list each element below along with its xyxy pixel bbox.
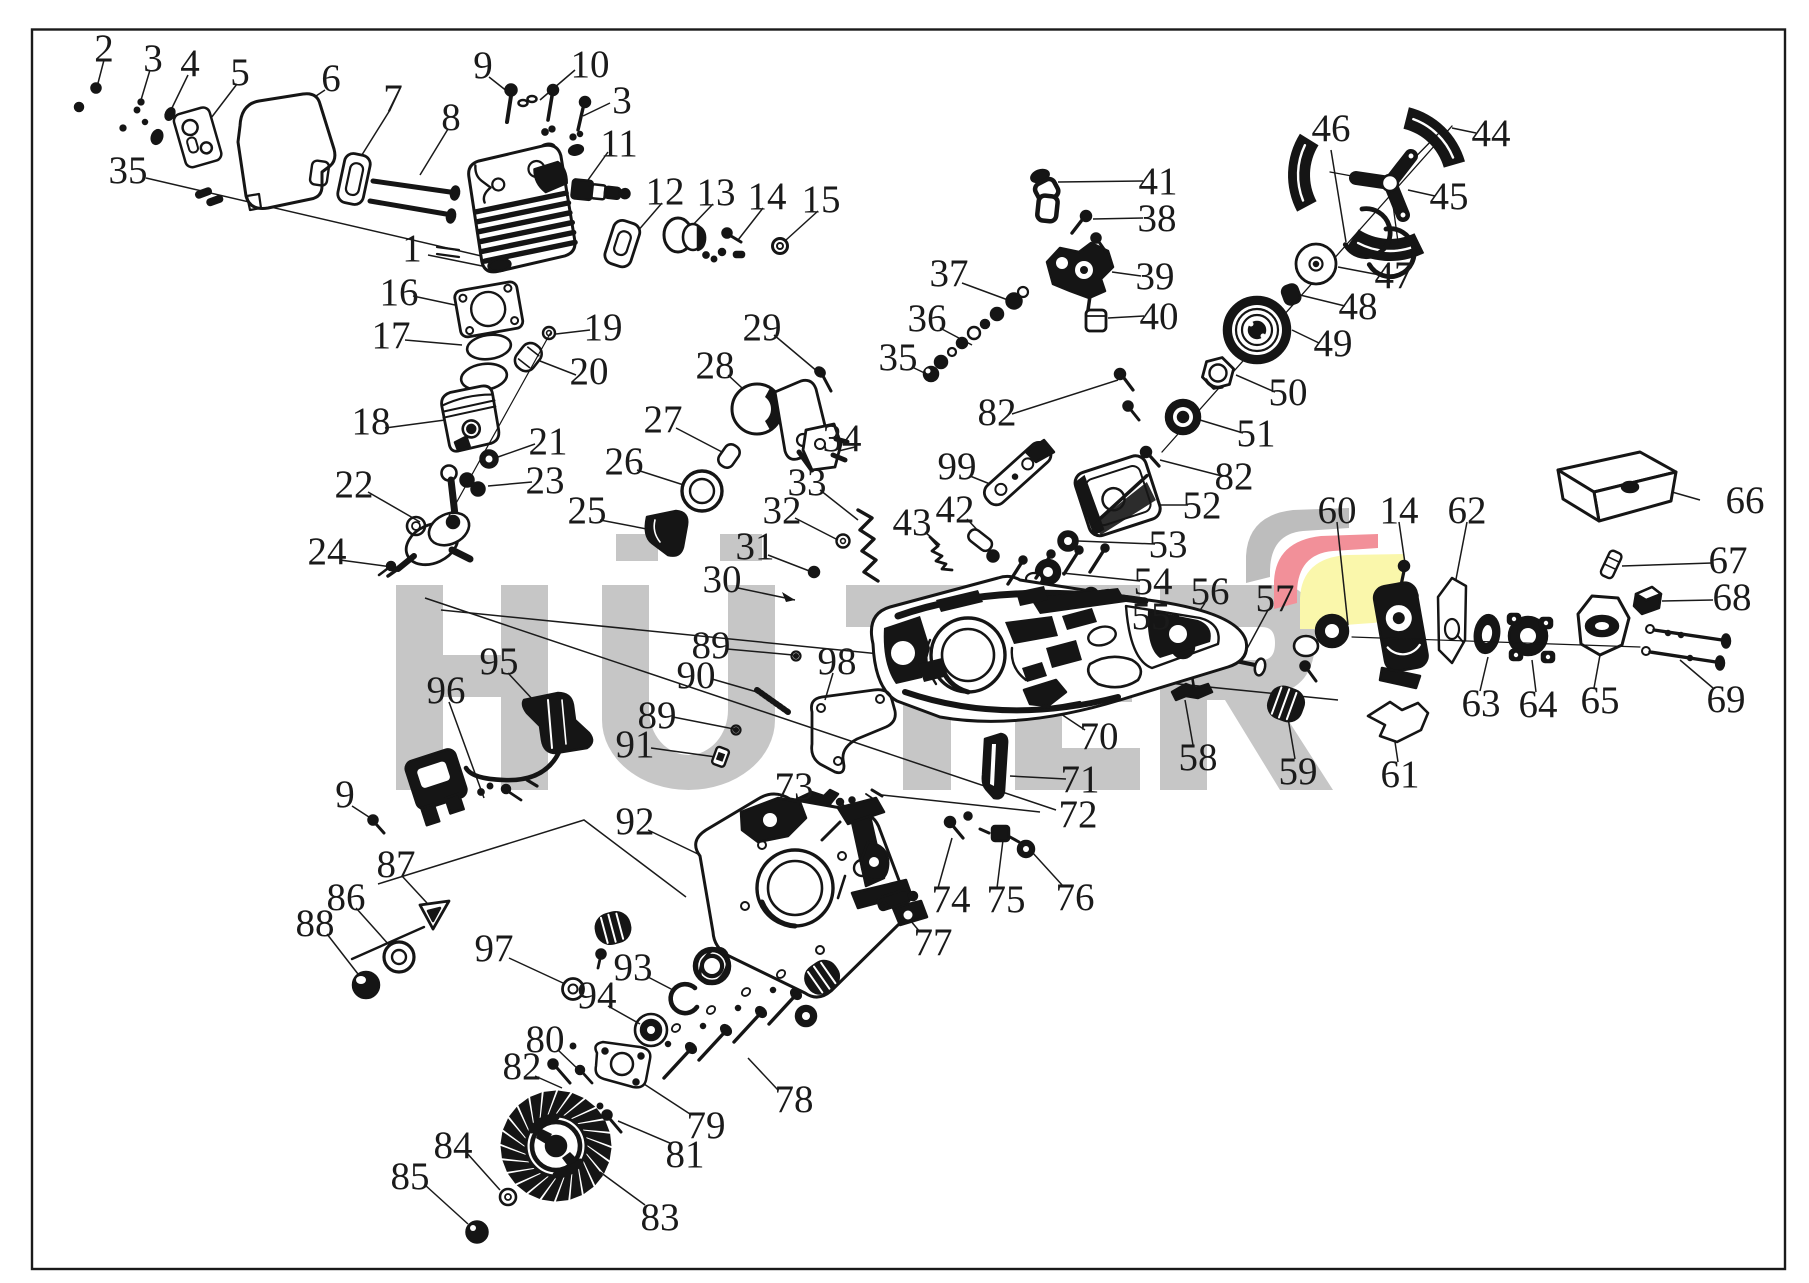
- svg-text:39: 39: [1136, 255, 1175, 298]
- svg-text:36: 36: [908, 297, 947, 340]
- svg-text:58: 58: [1179, 736, 1218, 779]
- svg-text:73: 73: [775, 765, 814, 808]
- svg-text:3: 3: [143, 37, 163, 80]
- svg-text:41: 41: [1139, 160, 1178, 203]
- svg-text:40: 40: [1140, 295, 1179, 338]
- svg-text:7: 7: [383, 77, 403, 120]
- svg-text:15: 15: [802, 178, 841, 221]
- svg-text:3: 3: [612, 79, 632, 122]
- svg-text:24: 24: [308, 530, 347, 573]
- svg-text:12: 12: [646, 170, 685, 213]
- svg-text:82: 82: [503, 1045, 542, 1088]
- svg-text:37: 37: [930, 252, 969, 295]
- svg-text:9: 9: [473, 44, 493, 87]
- svg-text:17: 17: [372, 314, 411, 357]
- svg-text:2: 2: [94, 27, 114, 70]
- svg-text:33: 33: [788, 461, 827, 504]
- svg-text:21: 21: [529, 420, 568, 463]
- svg-text:96: 96: [427, 669, 466, 712]
- svg-text:20: 20: [570, 350, 609, 393]
- svg-text:77: 77: [914, 921, 953, 964]
- svg-text:82: 82: [978, 391, 1017, 434]
- svg-text:61: 61: [1381, 753, 1420, 796]
- svg-text:93: 93: [614, 946, 653, 989]
- svg-text:69: 69: [1707, 678, 1746, 721]
- svg-text:59: 59: [1279, 750, 1318, 793]
- svg-text:27: 27: [644, 398, 683, 441]
- svg-text:92: 92: [616, 800, 655, 843]
- svg-text:34: 34: [823, 417, 862, 460]
- svg-text:25: 25: [568, 489, 607, 532]
- svg-text:78: 78: [775, 1078, 814, 1121]
- svg-text:98: 98: [818, 640, 857, 683]
- svg-text:11: 11: [600, 122, 638, 165]
- svg-text:65: 65: [1581, 679, 1620, 722]
- svg-text:14: 14: [1380, 489, 1419, 532]
- svg-text:14: 14: [748, 175, 787, 218]
- svg-text:55: 55: [1132, 595, 1171, 638]
- svg-text:28: 28: [696, 344, 735, 387]
- svg-text:68: 68: [1713, 576, 1752, 619]
- svg-text:52: 52: [1183, 484, 1222, 527]
- svg-text:5: 5: [230, 51, 250, 94]
- svg-text:97: 97: [475, 927, 514, 970]
- svg-text:22: 22: [335, 463, 374, 506]
- svg-text:74: 74: [932, 878, 971, 921]
- svg-text:60: 60: [1318, 489, 1357, 532]
- svg-text:18: 18: [352, 400, 391, 443]
- svg-text:26: 26: [605, 440, 644, 483]
- svg-text:49: 49: [1314, 322, 1353, 365]
- svg-text:51: 51: [1237, 412, 1276, 455]
- svg-text:10: 10: [571, 43, 610, 86]
- svg-text:46: 46: [1312, 107, 1351, 150]
- svg-text:35: 35: [109, 149, 148, 192]
- svg-text:64: 64: [1519, 683, 1558, 726]
- svg-text:99: 99: [938, 445, 977, 488]
- svg-text:66: 66: [1726, 479, 1765, 522]
- svg-text:90: 90: [677, 654, 716, 697]
- svg-text:70: 70: [1080, 715, 1119, 758]
- svg-text:62: 62: [1448, 489, 1487, 532]
- svg-text:84: 84: [434, 1124, 473, 1167]
- svg-text:23: 23: [526, 459, 565, 502]
- svg-text:4: 4: [180, 42, 200, 85]
- svg-text:87: 87: [377, 843, 416, 886]
- svg-text:38: 38: [1138, 197, 1177, 240]
- svg-text:75: 75: [987, 878, 1026, 921]
- svg-text:16: 16: [380, 271, 419, 314]
- svg-text:56: 56: [1191, 570, 1230, 613]
- svg-text:42: 42: [936, 488, 975, 531]
- svg-text:50: 50: [1269, 371, 1308, 414]
- svg-text:83: 83: [641, 1196, 680, 1239]
- svg-text:44: 44: [1472, 112, 1511, 155]
- svg-text:35: 35: [879, 336, 918, 379]
- svg-text:29: 29: [743, 306, 782, 349]
- svg-text:9: 9: [335, 773, 355, 816]
- svg-text:63: 63: [1462, 682, 1501, 725]
- svg-text:94: 94: [578, 974, 617, 1017]
- svg-text:81: 81: [666, 1133, 705, 1176]
- svg-text:57: 57: [1256, 577, 1295, 620]
- svg-text:43: 43: [893, 501, 932, 544]
- svg-text:72: 72: [1059, 793, 1098, 836]
- svg-text:91: 91: [616, 723, 655, 766]
- svg-text:45: 45: [1430, 175, 1469, 218]
- svg-text:19: 19: [584, 306, 623, 349]
- svg-text:85: 85: [391, 1155, 430, 1198]
- svg-text:47: 47: [1375, 254, 1414, 297]
- svg-text:1: 1: [402, 227, 422, 270]
- svg-text:8: 8: [441, 96, 461, 139]
- svg-text:76: 76: [1056, 876, 1095, 919]
- svg-text:6: 6: [321, 57, 341, 100]
- svg-text:95: 95: [480, 640, 519, 683]
- svg-text:88: 88: [296, 902, 335, 945]
- svg-text:13: 13: [697, 171, 736, 214]
